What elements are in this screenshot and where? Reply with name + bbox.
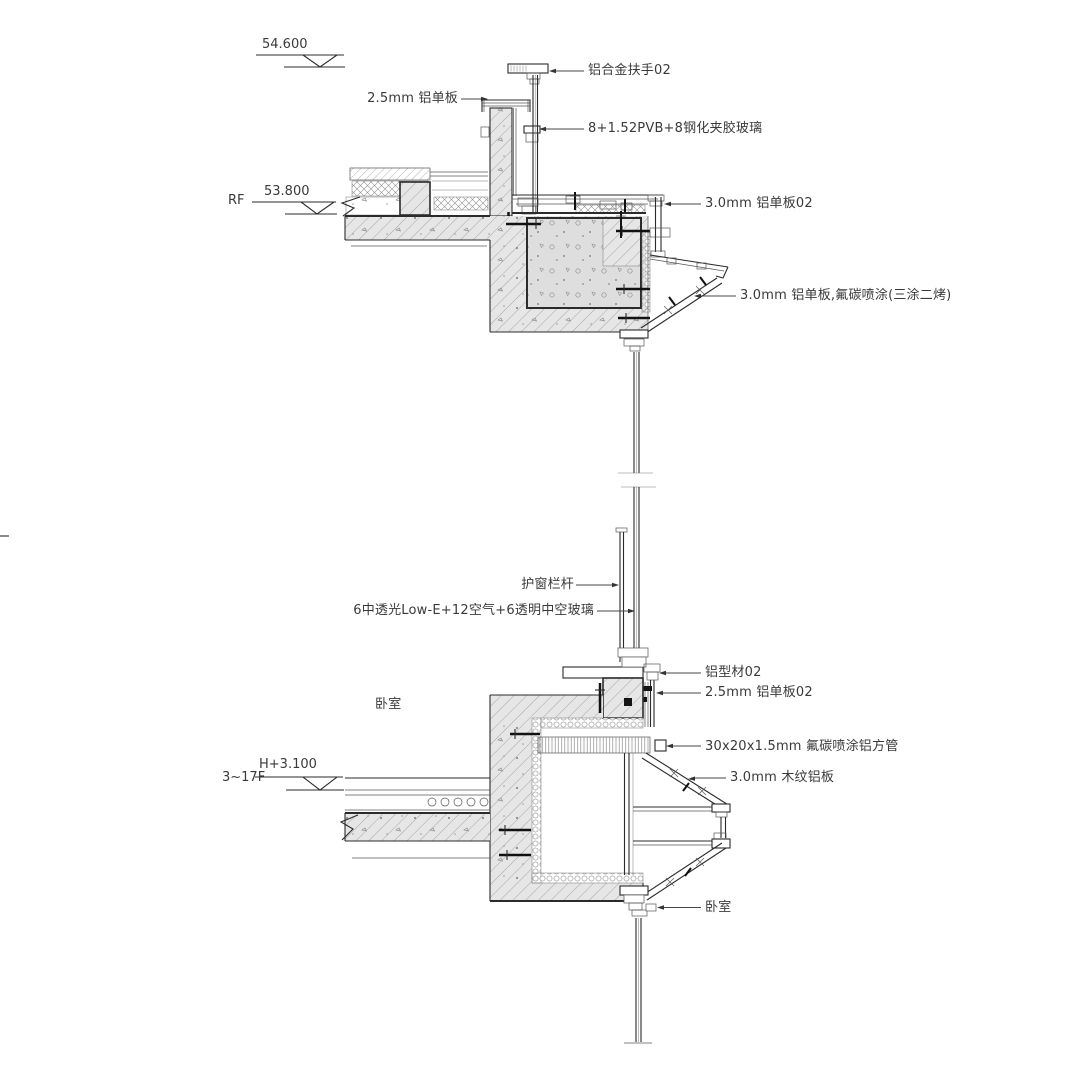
leader-guard-rail	[576, 583, 619, 587]
leader-handrail	[549, 69, 584, 73]
leader-profile-02	[659, 671, 701, 675]
level-name-roof: RF	[228, 193, 245, 208]
guard-rail	[616, 528, 627, 662]
label-bedroom-upper: 卧室	[375, 697, 401, 713]
fascia-soffit-panel	[641, 195, 728, 333]
label-panel-3-0-fc: 3.0mm 铝单板,氟碳喷涂(三涂二烤)	[740, 288, 951, 304]
level-value-parapet: 54.600	[262, 37, 308, 52]
floor-slab	[341, 778, 490, 858]
leader-panel-3-0-fc	[694, 294, 736, 298]
section-detail-drawing: 54.600 RF 53.800 3~17F H+3.100 铝合金扶手02 2…	[0, 0, 1080, 1080]
roof-slab	[345, 216, 512, 246]
leader-panel-2-5-02	[656, 691, 701, 695]
leader-wood-panel	[688, 776, 726, 780]
elevation-marker-rf	[252, 202, 337, 214]
leader-insulated-glass	[597, 609, 635, 613]
roof-beam-mass	[490, 211, 650, 332]
bay-window-panels	[634, 753, 730, 900]
label-square-tube: 30x20x1.5mm 氟碳喷涂铝方管	[705, 739, 898, 755]
elevation-markers	[0, 55, 345, 790]
glass-railing	[508, 64, 548, 212]
label-handrail: 铝合金扶手02	[588, 63, 671, 79]
level-value-floor: H+3.100	[259, 757, 317, 772]
lower-structure	[490, 678, 712, 901]
level-name-floor: 3~17F	[222, 770, 265, 785]
label-panel-2-5: 2.5mm 铝单板	[367, 91, 458, 107]
label-laminated-glass: 8+1.52PVB+8钢化夹胶玻璃	[588, 121, 762, 137]
label-wood-panel: 3.0mm 木纹铝板	[730, 770, 834, 786]
label-panel-3-0-02: 3.0mm 铝单板02	[705, 196, 813, 212]
leader-bedroom-lower	[646, 904, 701, 911]
level-value-roof: 53.800	[264, 184, 310, 199]
leader-panel-3-0-02	[664, 202, 701, 206]
leader-laminated-glass	[539, 127, 584, 131]
label-guard-rail: 护窗栏杆	[521, 577, 574, 593]
drawing-linework	[0, 0, 1080, 1080]
leader-square-tube	[666, 744, 701, 748]
elevation-marker-floor	[255, 777, 344, 790]
elevation-marker-54600	[256, 55, 345, 67]
label-profile-02: 铝型材02	[705, 665, 762, 681]
coping-flashing	[512, 192, 663, 213]
label-insulated-glass: 6中透光Low-E+12空气+6透明中空玻璃	[353, 603, 594, 619]
label-panel-2-5-02: 2.5mm 铝单板02	[705, 685, 813, 701]
roof-build-up	[342, 168, 488, 216]
label-bedroom-lower: 卧室	[705, 900, 731, 916]
